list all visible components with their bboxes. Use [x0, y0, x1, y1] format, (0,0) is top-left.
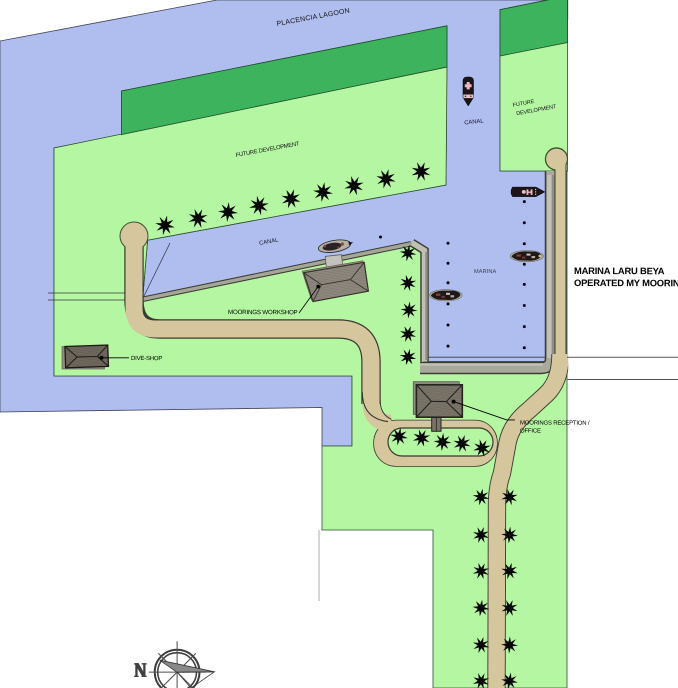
- svg-text:MARINA: MARINA: [474, 269, 497, 275]
- svg-text:DIVE-SHOP: DIVE-SHOP: [131, 356, 162, 362]
- svg-text:MOORINGS RECEPTION /: MOORINGS RECEPTION /: [520, 421, 590, 427]
- svg-text:MARINA LARU BEYA: MARINA LARU BEYA: [574, 265, 665, 276]
- svg-text:OFFICE: OFFICE: [520, 429, 541, 435]
- svg-text:MOORINGS WORKSHOP: MOORINGS WORKSHOP: [228, 309, 298, 316]
- svg-text:OPERATED MY MOORINGS: OPERATED MY MOORINGS: [574, 277, 678, 288]
